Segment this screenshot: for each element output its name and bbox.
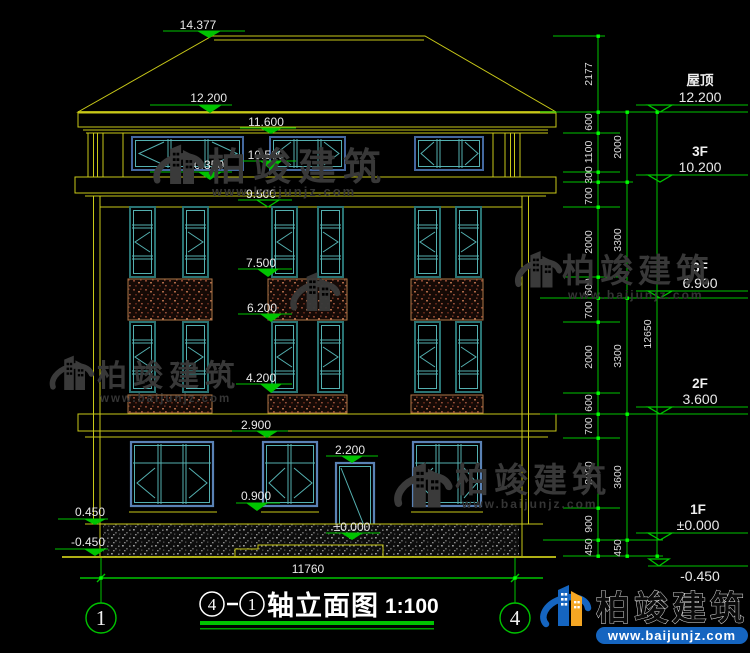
svg-text:柏竣建筑: 柏竣建筑 — [596, 589, 748, 628]
floor-level-label: 1F ±0.000 — [636, 502, 748, 540]
elevation-marker: 2.900 — [232, 418, 288, 438]
svg-text:700: 700 — [583, 301, 595, 319]
window — [318, 207, 343, 277]
svg-text:7.500: 7.500 — [246, 256, 276, 270]
elevation-marker: 0.450 — [58, 505, 108, 525]
corner-column-right — [500, 130, 525, 177]
svg-text:700: 700 — [583, 417, 595, 435]
svg-text:2.900: 2.900 — [241, 418, 271, 432]
axis-bubble-left: 1 — [86, 603, 116, 633]
svg-text:600: 600 — [583, 394, 595, 412]
elevation-marker: 14.377 — [163, 18, 245, 38]
svg-text:3600: 3600 — [612, 465, 624, 489]
brand-icon — [543, 585, 588, 626]
watermark-bottom: 柏竣建筑 www.baijunjz.com — [398, 461, 611, 511]
svg-text:0.450: 0.450 — [75, 505, 105, 519]
plinth — [85, 524, 543, 557]
svg-text:450: 450 — [583, 538, 595, 556]
svg-text:4: 4 — [208, 595, 217, 614]
floor-level-label: 屋顶 12.200 — [636, 73, 748, 112]
title-text: 轴立面图 — [267, 590, 379, 621]
svg-text:300: 300 — [583, 166, 595, 184]
third-floor-windows — [130, 207, 481, 277]
svg-text:11.600: 11.600 — [248, 115, 284, 129]
svg-text:1F: 1F — [690, 502, 706, 517]
window — [318, 322, 343, 392]
footer-logo: 柏竣建筑 www.baijunjz.com — [543, 585, 748, 644]
svg-text:-0.450: -0.450 — [680, 568, 720, 584]
dim-chain-total: 12650 — [642, 319, 654, 348]
drawing-title: 4 1 轴立面图 1:100 — [200, 590, 439, 630]
svg-text:www.baijunjz.com: www.baijunjz.com — [567, 288, 704, 302]
window — [456, 322, 481, 392]
window — [130, 207, 155, 277]
belt-band — [78, 414, 556, 437]
svg-text:2000: 2000 — [612, 135, 624, 159]
elevation-marker: 11.600 — [240, 115, 296, 134]
svg-text:900: 900 — [583, 515, 595, 533]
dim-chain-floor: 2000 3300 3300 3600 450 — [612, 135, 624, 557]
svg-text:±0.000: ±0.000 — [677, 517, 720, 533]
svg-text:柏竣建筑: 柏竣建筑 — [562, 252, 714, 289]
title-scale: 1:100 — [385, 595, 439, 618]
eave-band — [78, 113, 556, 133]
window — [456, 207, 481, 277]
svg-text:3.600: 3.600 — [682, 391, 717, 407]
drawing-canvas: 12.200 10.350 0.450 -0.450 14.377 11.600 — [0, 0, 750, 653]
corner-column-left — [83, 130, 108, 177]
left-elevation-markers: 12.200 10.350 0.450 -0.450 — [55, 91, 232, 556]
svg-text:3300: 3300 — [612, 344, 624, 368]
svg-text:12650: 12650 — [642, 319, 654, 348]
svg-text:1100: 1100 — [583, 141, 595, 164]
window — [415, 322, 440, 392]
svg-text:6.200: 6.200 — [247, 301, 277, 315]
svg-text:2.200: 2.200 — [335, 443, 365, 457]
svg-text:14.377: 14.377 — [180, 18, 217, 32]
svg-text:10.200: 10.200 — [679, 159, 722, 175]
watermark-left: 柏竣建筑 www.baijunjz.com — [52, 356, 241, 405]
svg-text:450: 450 — [612, 539, 624, 557]
floor-level-label: -0.450 — [648, 559, 748, 584]
window — [415, 207, 440, 277]
svg-text:www.baijunjz.com: www.baijunjz.com — [211, 184, 356, 199]
svg-text:600: 600 — [583, 113, 595, 131]
elevation-marker: 12.200 — [150, 91, 232, 113]
window — [129, 442, 217, 512]
watermark-top: 柏竣建筑 www.baijunjz.com — [157, 144, 388, 199]
svg-text:±0.000: ±0.000 — [334, 520, 371, 534]
svg-text:1: 1 — [96, 606, 107, 630]
svg-text:4: 4 — [510, 606, 521, 630]
floor-level-label: 2F 3.600 — [636, 376, 748, 414]
svg-text:12.200: 12.200 — [679, 89, 722, 105]
svg-text:2000: 2000 — [583, 345, 595, 369]
cad-elevation-sheet: 12.200 10.350 0.450 -0.450 14.377 11.600 — [0, 0, 750, 653]
svg-text:柏竣建筑: 柏竣建筑 — [455, 461, 611, 500]
svg-text:www.baijunjz.com: www.baijunjz.com — [461, 497, 598, 511]
svg-text:0.900: 0.900 — [241, 489, 271, 503]
watermark-right: 柏竣建筑 www.baijunjz.com — [518, 251, 714, 302]
svg-text:-0.450: -0.450 — [71, 535, 105, 549]
floor-level-label: 3F 10.200 — [636, 144, 748, 182]
svg-text:3F: 3F — [692, 144, 708, 159]
svg-text:11760: 11760 — [292, 562, 325, 576]
elevation-marker: 2.200 — [326, 443, 378, 463]
svg-text:2000: 2000 — [583, 230, 595, 254]
svg-text:2177: 2177 — [583, 62, 595, 86]
attic-window-right — [415, 137, 483, 170]
svg-text:4.200: 4.200 — [246, 371, 276, 385]
svg-text:柏竣建筑: 柏竣建筑 — [208, 147, 388, 189]
svg-text:3300: 3300 — [612, 228, 624, 252]
svg-text:2F: 2F — [692, 376, 708, 391]
svg-text:柏竣建筑: 柏竣建筑 — [97, 359, 241, 393]
roof — [78, 36, 556, 112]
svg-text:www.baijunjz.com: www.baijunjz.com — [99, 393, 231, 405]
window — [183, 207, 208, 277]
svg-text:700: 700 — [583, 187, 595, 205]
svg-text:1: 1 — [248, 595, 257, 614]
elevation-marker: 0.900 — [236, 489, 280, 511]
axis-bubble-right: 4 — [500, 603, 530, 633]
svg-text:12.200: 12.200 — [190, 91, 227, 105]
svg-text:www.baijunjz.com: www.baijunjz.com — [607, 628, 736, 643]
svg-text:屋顶: 屋顶 — [687, 73, 715, 88]
